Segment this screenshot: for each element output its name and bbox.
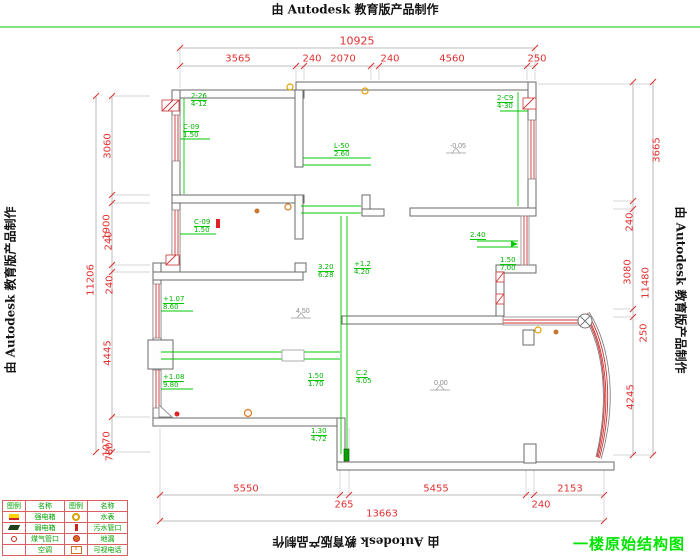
dim-right-total: 11480	[641, 267, 652, 299]
dim-left-7: 780	[105, 442, 116, 461]
legend-label: 水表	[88, 512, 128, 523]
dim-right-1: 3665	[652, 137, 663, 162]
window-annotation: +1.089.80	[163, 374, 184, 389]
dim-bottom-2: 265	[334, 500, 353, 511]
drain-icon	[255, 209, 260, 214]
dim-top-5: 4560	[439, 54, 464, 65]
legend-label: 可视电话	[88, 545, 128, 556]
legend-header: 名称	[88, 501, 128, 512]
dim-top-3: 2070	[330, 54, 355, 65]
window-annotation: +1.078.60	[163, 296, 184, 311]
drain-icon	[285, 204, 291, 210]
beam-annotation: 1.501.70	[308, 373, 324, 388]
level-marker-text: 0.00	[434, 380, 448, 387]
videophone-icon: x	[71, 546, 82, 554]
drawing-title: 一楼原始结构图	[573, 533, 685, 554]
weak-current-box-icon	[8, 525, 20, 530]
water-meter-icon	[72, 513, 80, 521]
dim-top-6: 250	[527, 54, 546, 65]
beam-annotation: 1.507.00	[500, 257, 516, 272]
bay-window	[584, 312, 610, 459]
gas-port-icon	[11, 536, 17, 542]
legend-row: 煤气管口 地漏	[3, 534, 128, 545]
legend-label: 煤气管口	[26, 534, 65, 545]
water-point-icon	[175, 412, 180, 417]
walls-layer	[148, 82, 614, 470]
legend-label: 空调	[26, 545, 65, 556]
watermark-right: 由 Autodesk 教育版产品制作	[673, 206, 690, 373]
duct-box	[148, 340, 173, 369]
sewage-pipe-icon	[75, 524, 78, 531]
dim-left-4: 240	[105, 275, 116, 294]
dim-right-3: 3080	[623, 259, 634, 284]
dim-left-total: 11206	[86, 264, 97, 296]
dim-right-2: 240	[625, 212, 636, 231]
sewage-pipe-icon	[216, 219, 220, 228]
watermark-bottom: 由 Autodesk 教育版产品制作	[272, 534, 439, 551]
dim-right-5: 4245	[626, 384, 637, 409]
gas-port-icon	[287, 84, 293, 90]
beam-vent-symbol	[282, 350, 304, 361]
cad-floorplan-canvas: 由 Autodesk 教育版产品制作 由 Autodesk 教育版产品制作 由 …	[0, 0, 700, 560]
beam-annotation: C.24.05	[356, 370, 372, 385]
legend-label: 地漏	[88, 534, 128, 545]
legend-header: 名称	[26, 501, 65, 512]
dim-top-1: 3565	[225, 54, 250, 65]
drain-icon	[245, 410, 252, 417]
videophone-icon	[578, 314, 592, 328]
legend-row: 弱电箱 污水管口	[3, 523, 128, 534]
level-marker-text: -0.05	[450, 143, 466, 150]
entry-door-swing	[159, 405, 172, 417]
dim-left-5: 4445	[103, 340, 114, 365]
legend-row: 空调 x 可视电话	[3, 545, 128, 556]
beam-annotation: 3.206.28	[318, 264, 334, 279]
dim-bottom-5: 2153	[557, 484, 582, 495]
watermark-top: 由 Autodesk 教育版产品制作	[271, 1, 438, 18]
dim-bottom-total: 13663	[366, 509, 398, 520]
dim-bottom-4: 240	[531, 500, 550, 511]
legend-header-row: 图例 名称 图例 名称	[3, 501, 128, 512]
legend-header: 图例	[65, 501, 88, 512]
beam-annotation: L-502.60	[334, 143, 350, 158]
beam-annotation: 2-264-12	[191, 93, 207, 108]
beam-annotation: 1.304.72	[311, 428, 327, 443]
legend-row: 强电箱 水表	[3, 512, 128, 523]
window-annotation: C-091.50	[194, 219, 210, 234]
dim-top-2: 240	[302, 54, 321, 65]
drain-icon	[554, 330, 559, 335]
legend-label: 强电箱	[26, 512, 65, 523]
floor-drain-icon	[73, 535, 80, 542]
legend-table: 图例 名称 图例 名称 强电箱 水表 弱电箱 污水管口 煤气管口 地漏 空调 x	[2, 500, 128, 556]
beam-annotation: 2.40	[470, 232, 486, 240]
dim-bottom-1: 5550	[233, 484, 258, 495]
legend-header: 图例	[3, 501, 26, 512]
dim-left-1: 3060	[103, 133, 114, 158]
level-marker-text: 4.50	[296, 308, 310, 315]
power-box-icon	[9, 514, 19, 520]
dim-left-3: 240	[104, 231, 115, 250]
beam-annotation: +1.24.20	[354, 261, 371, 276]
window-annotation: C-091.50	[183, 124, 199, 139]
watermark-left: 由 Autodesk 教育版产品制作	[2, 206, 19, 373]
dim-bottom-3: 5455	[423, 484, 448, 495]
dim-top-total: 10925	[340, 35, 375, 48]
window-annotation: 2-C94-30	[497, 95, 513, 110]
legend-label: 弱电箱	[26, 523, 65, 534]
legend-label: 污水管口	[88, 523, 128, 534]
dim-top-4: 240	[380, 54, 399, 65]
dim-right-4: 250	[639, 323, 650, 342]
gas-port-icon	[535, 327, 541, 333]
green-door-marker	[344, 449, 349, 461]
